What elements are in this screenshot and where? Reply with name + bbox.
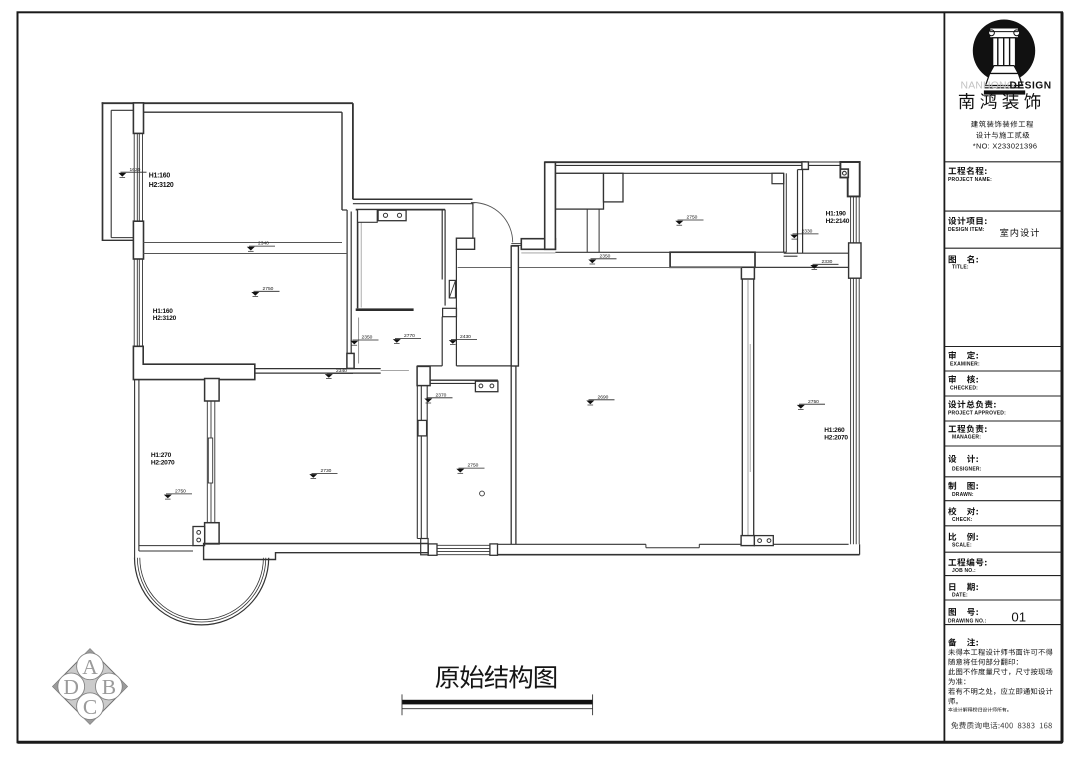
svg-text:H2:2140: H2:2140: [826, 218, 850, 225]
svg-text:H2:3120: H2:3120: [153, 315, 177, 322]
svg-text:2430: 2430: [460, 334, 471, 340]
svg-text:*NO: X233021396: *NO: X233021396: [973, 142, 1038, 151]
svg-text:H1:160: H1:160: [149, 173, 171, 180]
svg-text:DRAWN:: DRAWN:: [952, 492, 974, 498]
svg-text:JOB NO.:: JOB NO.:: [952, 568, 976, 574]
svg-text:2750: 2750: [808, 399, 819, 405]
svg-text:EXAMINER:: EXAMINER:: [950, 362, 980, 368]
svg-text:2350: 2350: [362, 335, 373, 341]
svg-text:2750: 2750: [687, 215, 698, 221]
svg-text:2770: 2770: [404, 333, 415, 339]
svg-text:DATE:: DATE:: [952, 593, 968, 599]
svg-text:2330: 2330: [802, 229, 813, 235]
svg-text:H2:3120: H2:3120: [149, 182, 174, 189]
svg-text:H2:2070: H2:2070: [824, 435, 848, 442]
svg-text:H2:2070: H2:2070: [151, 460, 175, 467]
svg-text:H1:270: H1:270: [151, 452, 172, 459]
svg-text:D: D: [63, 675, 79, 699]
svg-text:CHECKED:: CHECKED:: [950, 386, 978, 392]
svg-text:TITLE:: TITLE:: [952, 265, 969, 271]
svg-text:2340: 2340: [336, 368, 347, 374]
svg-text:H1:260: H1:260: [824, 427, 845, 434]
svg-text:PROJECT APPROVED:: PROJECT APPROVED:: [948, 411, 1006, 417]
svg-text:H1:190: H1:190: [826, 211, 847, 218]
svg-text:SCALE:: SCALE:: [952, 543, 972, 549]
svg-text:DESIGNER:: DESIGNER:: [952, 467, 982, 473]
svg-text:B: B: [102, 675, 116, 699]
svg-text:01: 01: [1011, 610, 1026, 625]
svg-text:H1:160: H1:160: [153, 308, 173, 315]
svg-text:DRAWING NO.:: DRAWING NO.:: [948, 619, 987, 625]
svg-text:2750: 2750: [468, 463, 479, 469]
svg-text:NANHONG: NANHONG: [961, 80, 1016, 91]
svg-text:MANAGER:: MANAGER:: [952, 435, 981, 441]
svg-text:2690: 2690: [598, 394, 609, 400]
svg-text:2730: 2730: [321, 468, 332, 474]
svg-text:C: C: [83, 695, 97, 719]
svg-text:DESIGN ITEM:: DESIGN ITEM:: [948, 227, 985, 233]
svg-text:2330: 2330: [822, 259, 833, 265]
svg-text:DESIGN: DESIGN: [1010, 80, 1052, 91]
svg-text:2340: 2340: [258, 241, 269, 247]
svg-text:2750: 2750: [175, 489, 186, 495]
svg-text:2750: 2750: [263, 286, 274, 292]
svg-text:2350: 2350: [600, 253, 611, 259]
svg-text:CHECK:: CHECK:: [952, 517, 973, 523]
svg-text:2370: 2370: [436, 392, 447, 398]
svg-text:A: A: [82, 655, 98, 679]
svg-text:PROJECT NAME:: PROJECT NAME:: [948, 177, 992, 183]
